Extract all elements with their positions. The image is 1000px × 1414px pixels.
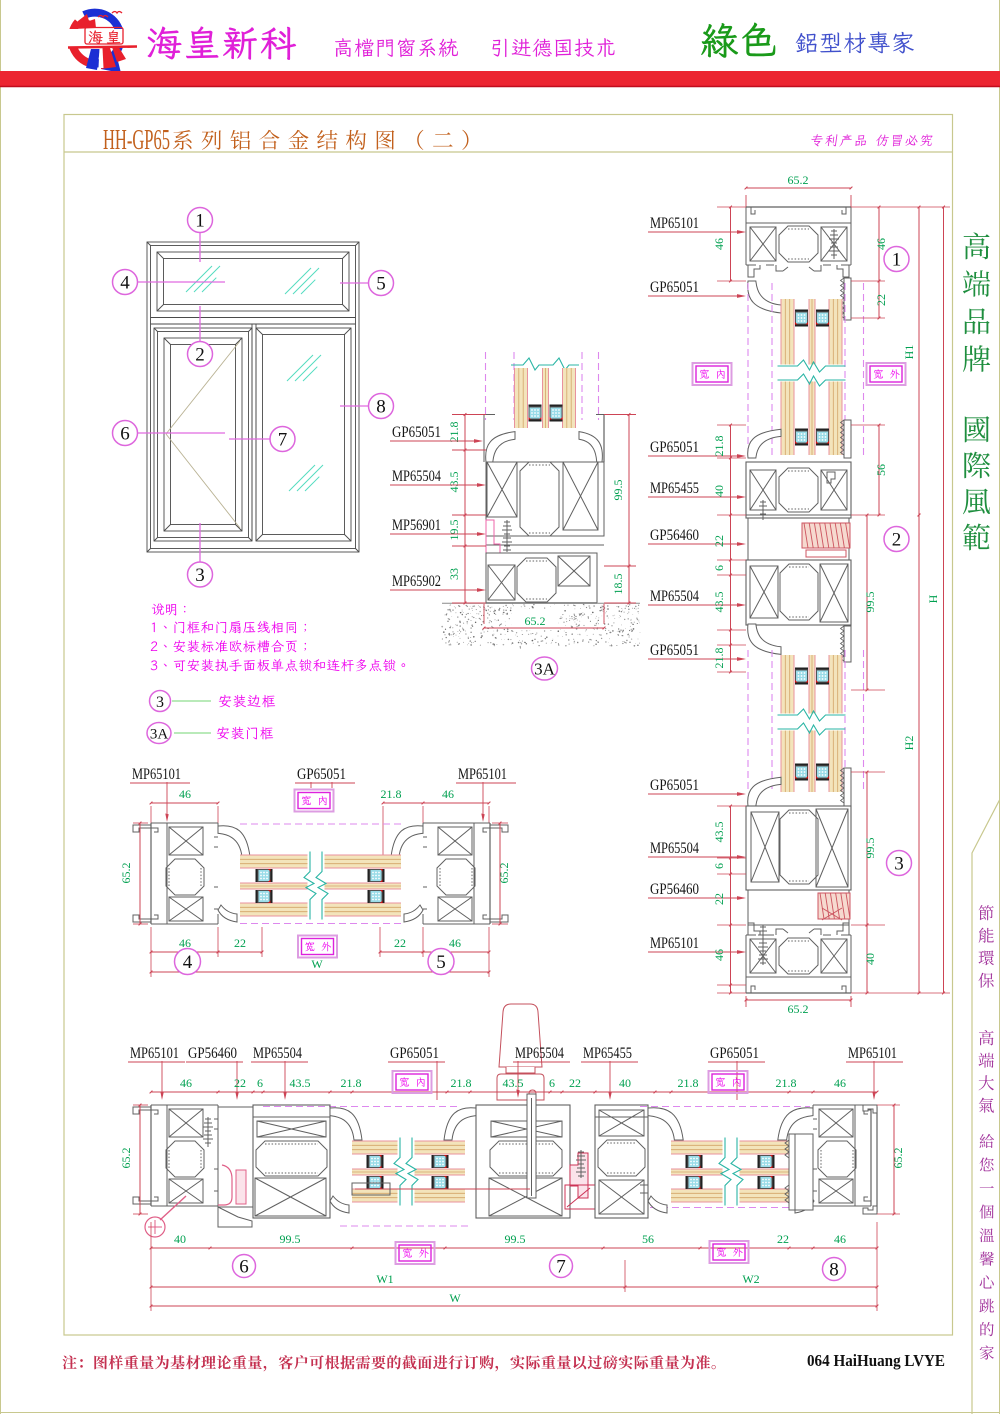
svg-text:MP65101: MP65101 bbox=[650, 935, 699, 952]
svg-text:46: 46 bbox=[834, 1232, 846, 1246]
svg-text:40: 40 bbox=[712, 485, 726, 497]
svg-text:MP65504: MP65504 bbox=[650, 588, 699, 605]
svg-text:GP65051: GP65051 bbox=[650, 777, 699, 794]
svg-text:40: 40 bbox=[619, 1076, 631, 1090]
svg-text:46: 46 bbox=[712, 238, 726, 250]
svg-text:22: 22 bbox=[712, 893, 726, 905]
svg-text:22: 22 bbox=[394, 936, 406, 950]
svg-text:GP65051: GP65051 bbox=[392, 424, 441, 441]
svg-text:8: 8 bbox=[376, 396, 386, 417]
svg-text:1: 1 bbox=[892, 249, 902, 270]
svg-text:6: 6 bbox=[549, 1076, 555, 1090]
svg-text:99.5: 99.5 bbox=[280, 1232, 301, 1246]
svg-text:22: 22 bbox=[234, 1076, 246, 1090]
svg-text:3: 3 bbox=[894, 853, 904, 874]
svg-text:W1: W1 bbox=[376, 1272, 393, 1286]
svg-text:GP56460: GP56460 bbox=[188, 1045, 237, 1062]
svg-text:46: 46 bbox=[179, 787, 191, 801]
svg-text:65.2: 65.2 bbox=[525, 614, 546, 628]
svg-text:2: 2 bbox=[195, 344, 205, 365]
svg-text:21.8: 21.8 bbox=[381, 787, 402, 801]
svg-text:43.5: 43.5 bbox=[503, 1076, 524, 1090]
svg-text:22: 22 bbox=[874, 294, 888, 306]
svg-text:4: 4 bbox=[183, 952, 193, 973]
svg-text:21.8: 21.8 bbox=[341, 1076, 362, 1090]
svg-text:MP65101: MP65101 bbox=[458, 766, 507, 783]
svg-text:GP65051: GP65051 bbox=[650, 642, 699, 659]
svg-text:43.5: 43.5 bbox=[290, 1076, 311, 1090]
svg-text:65.2: 65.2 bbox=[788, 1002, 809, 1016]
svg-text:21.8: 21.8 bbox=[447, 422, 461, 443]
svg-text:3: 3 bbox=[156, 694, 164, 711]
svg-text:GP56460: GP56460 bbox=[650, 881, 699, 898]
svg-text:4: 4 bbox=[120, 272, 130, 293]
svg-text:99.5: 99.5 bbox=[863, 838, 877, 859]
svg-text:MP65504: MP65504 bbox=[515, 1045, 564, 1062]
svg-text:GP65051: GP65051 bbox=[390, 1045, 439, 1062]
svg-text:W2: W2 bbox=[742, 1272, 759, 1286]
svg-text:21.8: 21.8 bbox=[776, 1076, 797, 1090]
svg-text:6: 6 bbox=[120, 423, 130, 444]
svg-text:43.5: 43.5 bbox=[712, 822, 726, 843]
svg-text:064 HaiHuang LVYE: 064 HaiHuang LVYE bbox=[807, 1351, 945, 1370]
svg-text:5: 5 bbox=[436, 952, 446, 973]
svg-text:65.2: 65.2 bbox=[497, 863, 511, 884]
svg-text:8: 8 bbox=[829, 1259, 839, 1280]
svg-text:40: 40 bbox=[863, 953, 877, 965]
svg-text:19.5: 19.5 bbox=[447, 520, 461, 541]
svg-text:MP65455: MP65455 bbox=[650, 480, 699, 497]
svg-text:21.8: 21.8 bbox=[451, 1076, 472, 1090]
svg-text:3A: 3A bbox=[150, 727, 169, 743]
svg-text:MP65101: MP65101 bbox=[848, 1045, 897, 1062]
svg-text:HH-GP65: HH-GP65 bbox=[103, 124, 170, 156]
svg-text:W: W bbox=[449, 1291, 461, 1305]
svg-text:GP65051: GP65051 bbox=[297, 766, 346, 783]
svg-text:GP65051: GP65051 bbox=[650, 439, 699, 456]
svg-text:2: 2 bbox=[892, 529, 902, 550]
svg-text:7: 7 bbox=[278, 429, 288, 450]
svg-text:W: W bbox=[311, 957, 323, 971]
svg-text:H1: H1 bbox=[902, 345, 916, 360]
svg-text:MP56901: MP56901 bbox=[392, 517, 441, 534]
svg-text:MP65504: MP65504 bbox=[650, 840, 699, 857]
svg-text:GP56460: GP56460 bbox=[650, 527, 699, 544]
svg-text:MP65504: MP65504 bbox=[253, 1045, 302, 1062]
svg-text:56: 56 bbox=[874, 464, 888, 476]
svg-text:99.5: 99.5 bbox=[611, 480, 625, 501]
svg-text:40: 40 bbox=[174, 1232, 186, 1246]
svg-text:H: H bbox=[926, 594, 940, 603]
svg-text:MP65101: MP65101 bbox=[650, 215, 699, 232]
svg-text:6: 6 bbox=[712, 863, 726, 869]
svg-text:6: 6 bbox=[257, 1076, 263, 1090]
svg-text:6: 6 bbox=[712, 565, 726, 571]
svg-text:22: 22 bbox=[234, 936, 246, 950]
svg-text:43.5: 43.5 bbox=[712, 592, 726, 613]
svg-text:MP65455: MP65455 bbox=[583, 1045, 632, 1062]
svg-text:18.5: 18.5 bbox=[611, 574, 625, 595]
svg-text:22: 22 bbox=[569, 1076, 581, 1090]
svg-text:5: 5 bbox=[376, 273, 386, 294]
svg-text:6: 6 bbox=[239, 1256, 249, 1277]
svg-text:46: 46 bbox=[449, 936, 461, 950]
svg-text:21.8: 21.8 bbox=[678, 1076, 699, 1090]
svg-text:46: 46 bbox=[874, 238, 888, 250]
svg-text:7: 7 bbox=[556, 1256, 566, 1277]
svg-text:65.2: 65.2 bbox=[788, 173, 809, 187]
svg-text:56: 56 bbox=[642, 1232, 654, 1246]
svg-text:21.8: 21.8 bbox=[712, 648, 726, 669]
svg-text:65.2: 65.2 bbox=[891, 1148, 905, 1169]
svg-text:H2: H2 bbox=[902, 736, 916, 751]
svg-text:65.2: 65.2 bbox=[119, 863, 133, 884]
svg-text:43.5: 43.5 bbox=[447, 472, 461, 493]
svg-text:33: 33 bbox=[447, 568, 461, 580]
svg-text:22: 22 bbox=[712, 535, 726, 547]
svg-text:46: 46 bbox=[834, 1076, 846, 1090]
svg-text:65.2: 65.2 bbox=[119, 1148, 133, 1169]
svg-text:MP65101: MP65101 bbox=[132, 766, 181, 783]
svg-text:3A: 3A bbox=[534, 660, 556, 679]
svg-text:99.5: 99.5 bbox=[863, 592, 877, 613]
svg-text:46: 46 bbox=[712, 949, 726, 961]
svg-text:GP65051: GP65051 bbox=[710, 1045, 759, 1062]
svg-text:MP65902: MP65902 bbox=[392, 573, 441, 590]
svg-text:46: 46 bbox=[180, 1076, 192, 1090]
svg-text:22: 22 bbox=[777, 1232, 789, 1246]
svg-text:MP65101: MP65101 bbox=[130, 1045, 179, 1062]
svg-text:1: 1 bbox=[195, 210, 205, 231]
svg-text:GP65051: GP65051 bbox=[650, 279, 699, 296]
svg-text:99.5: 99.5 bbox=[505, 1232, 526, 1246]
svg-text:MP65504: MP65504 bbox=[392, 468, 441, 485]
svg-text:3: 3 bbox=[195, 565, 205, 586]
svg-text:21.8: 21.8 bbox=[712, 436, 726, 457]
svg-text:46: 46 bbox=[442, 787, 454, 801]
